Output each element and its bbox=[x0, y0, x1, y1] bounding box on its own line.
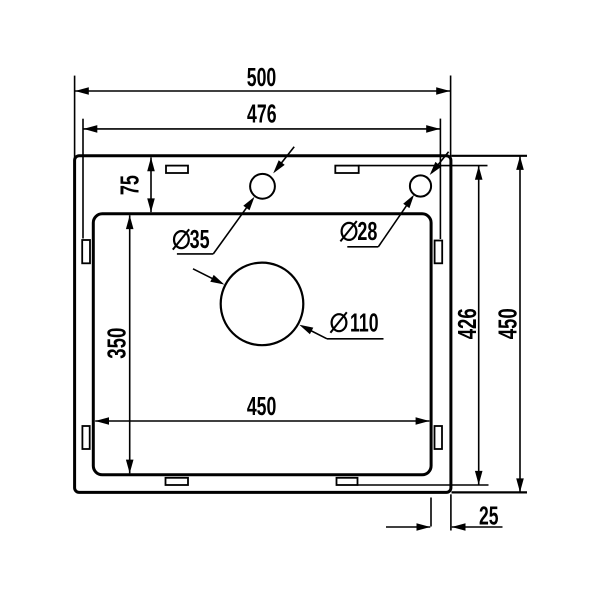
svg-text:426: 426 bbox=[452, 308, 482, 339]
svg-text:350: 350 bbox=[101, 328, 131, 359]
svg-text:75: 75 bbox=[114, 175, 144, 195]
svg-text:110: 110 bbox=[350, 307, 379, 337]
svg-text:450: 450 bbox=[493, 308, 523, 339]
svg-text:25: 25 bbox=[479, 501, 499, 531]
svg-text:28: 28 bbox=[357, 216, 377, 246]
svg-text:500: 500 bbox=[247, 62, 277, 92]
svg-text:476: 476 bbox=[247, 99, 277, 129]
svg-text:35: 35 bbox=[190, 224, 210, 254]
svg-text:450: 450 bbox=[247, 391, 277, 421]
